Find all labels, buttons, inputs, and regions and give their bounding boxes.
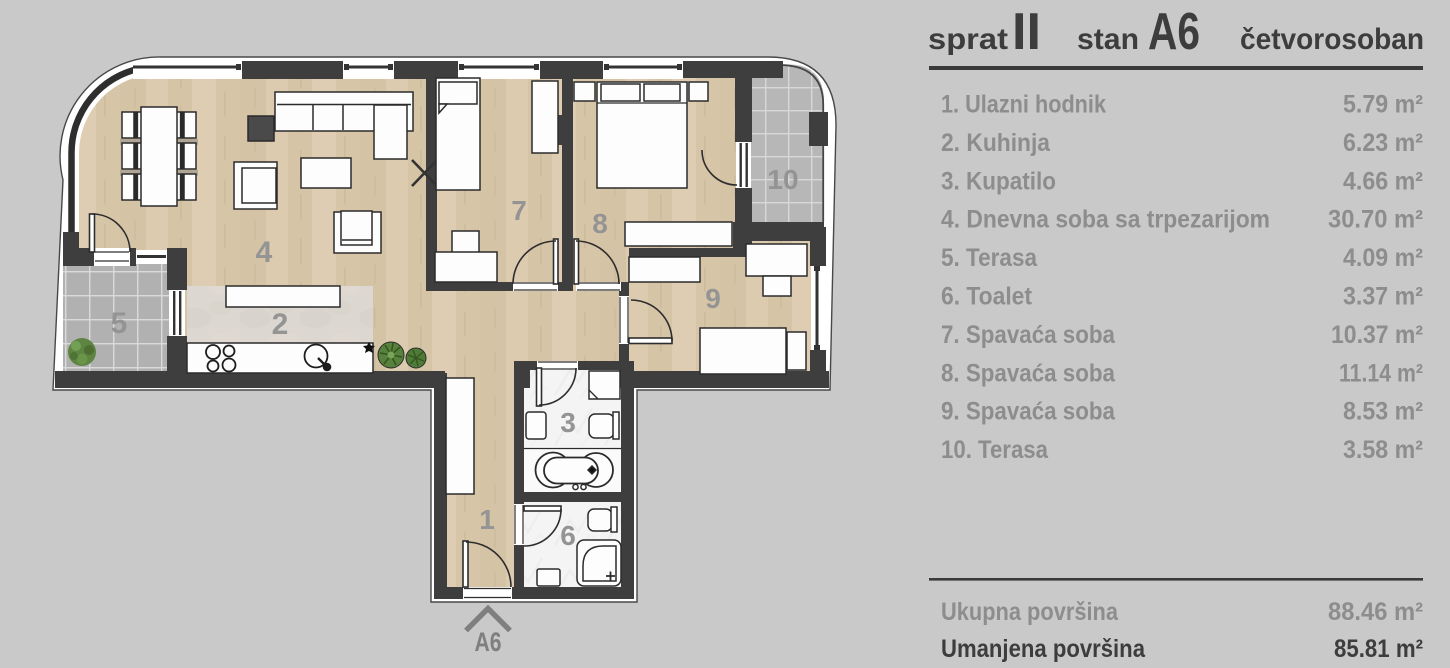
svg-text:3.37 m²: 3.37 m²	[1343, 283, 1423, 311]
svg-text:4: 4	[256, 236, 273, 269]
svg-text:A6: A6	[475, 627, 502, 657]
svg-text:1. Ulazni hodnik: 1. Ulazni hodnik	[941, 91, 1106, 119]
svg-text:7: 7	[511, 195, 527, 226]
svg-text:5.79 m²: 5.79 m²	[1343, 91, 1423, 119]
svg-text:4. Dnevna soba sa trpezarijom: 4. Dnevna soba sa trpezarijom	[941, 206, 1270, 234]
svg-text:1: 1	[479, 504, 495, 535]
svg-text:10. Terasa: 10. Terasa	[941, 436, 1049, 464]
svg-text:3: 3	[560, 407, 576, 438]
svg-text:88.46 m²: 88.46 m²	[1328, 598, 1423, 626]
svg-text:7. Spavaća soba: 7. Spavaća soba	[941, 321, 1116, 349]
svg-text:11.14 m²: 11.14 m²	[1339, 359, 1423, 387]
svg-text:II: II	[1012, 3, 1041, 61]
svg-text:stan: stan	[1077, 23, 1139, 56]
svg-text:četvorosoban: četvorosoban	[1240, 23, 1424, 56]
svg-text:10.37 m²: 10.37 m²	[1331, 321, 1423, 349]
svg-text:3.58 m²: 3.58 m²	[1343, 436, 1423, 464]
svg-text:6: 6	[560, 520, 576, 551]
svg-text:6.23 m²: 6.23 m²	[1343, 129, 1423, 157]
svg-text:8. Spavaća soba: 8. Spavaća soba	[941, 359, 1116, 387]
svg-text:85.81 m²: 85.81 m²	[1334, 635, 1423, 663]
svg-text:10: 10	[767, 164, 798, 195]
svg-text:2: 2	[272, 308, 289, 341]
svg-text:6. Toalet: 6. Toalet	[941, 283, 1033, 311]
svg-text:A6: A6	[1148, 3, 1200, 61]
svg-text:3. Kupatilo: 3. Kupatilo	[941, 167, 1056, 195]
svg-text:4.66 m²: 4.66 m²	[1343, 167, 1423, 195]
svg-text:8.53 m²: 8.53 m²	[1343, 398, 1423, 426]
svg-text:4.09 m²: 4.09 m²	[1343, 244, 1423, 272]
svg-text:8: 8	[592, 208, 608, 239]
svg-text:5: 5	[111, 307, 128, 340]
svg-text:Ukupna površina: Ukupna površina	[941, 598, 1119, 626]
svg-text:sprat: sprat	[928, 23, 1008, 56]
svg-text:Umanjena površina: Umanjena površina	[941, 635, 1146, 663]
svg-text:9. Spavaća soba: 9. Spavaća soba	[941, 398, 1116, 426]
svg-text:9: 9	[705, 283, 721, 314]
svg-text:2. Kuhinja: 2. Kuhinja	[941, 129, 1051, 157]
svg-text:5. Terasa: 5. Terasa	[941, 244, 1038, 272]
svg-text:30.70 m²: 30.70 m²	[1328, 206, 1423, 234]
